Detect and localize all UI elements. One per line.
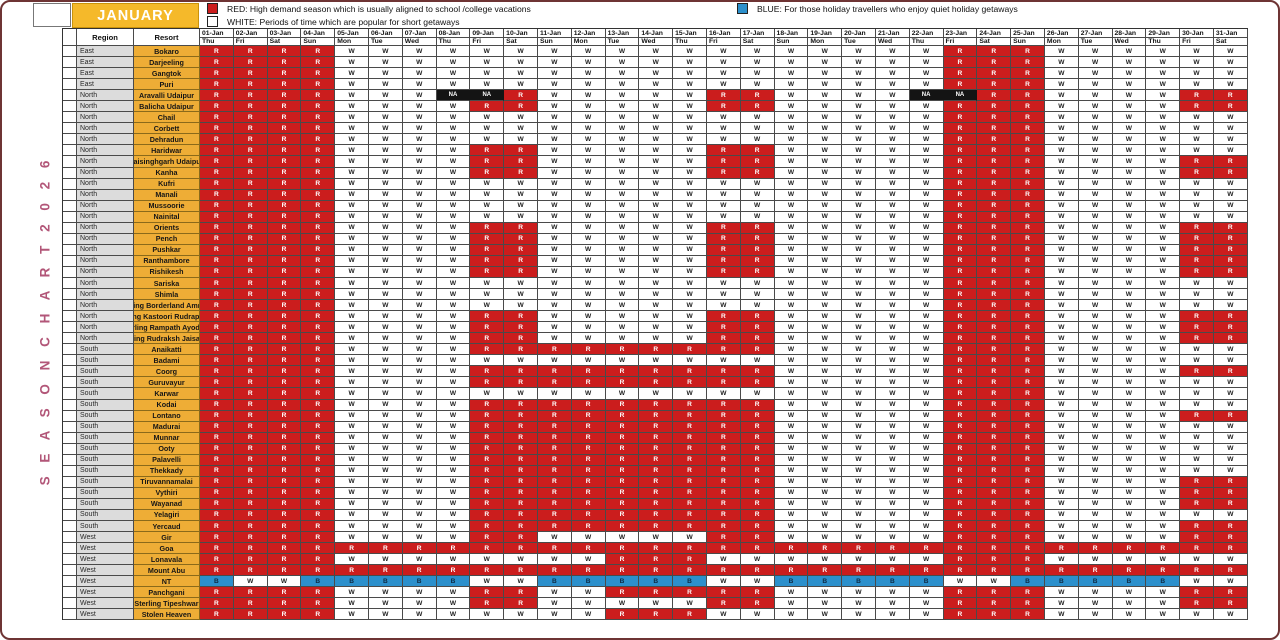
season-cell: W [775,168,809,179]
season-cell: R [200,444,234,455]
season-cell: W [572,598,606,609]
weekday-label: Fri [1180,38,1214,45]
season-cell: W [538,201,572,212]
season-cell: W [403,377,437,388]
season-cell: W [1146,521,1180,532]
season-cell: W [775,212,809,223]
table-row: NorthMussoorieRRRRWWWWWWWWWWWWWWWWWWRRRW… [63,201,1248,212]
season-cell: W [1079,499,1113,510]
season-cell: R [504,366,538,377]
season-cell: R [200,289,234,300]
season-cell: R [301,145,335,156]
season-cell: R [200,543,234,554]
region-cell: North [77,289,134,300]
season-cell: W [606,311,640,322]
season-cell: W [1180,179,1214,190]
row-blank-cell [63,212,77,223]
season-cell: W [673,289,707,300]
season-cell: W [1079,112,1113,123]
season-cell: W [910,168,944,179]
season-cell: R [1214,234,1248,245]
season-cell: W [1113,609,1147,620]
resort-name-cell: Munnar [134,433,200,444]
season-cell: R [200,554,234,565]
season-cell: R [268,411,302,422]
season-cell: R [234,101,268,112]
season-cell: W [1180,79,1214,90]
season-cell: W [1045,57,1079,68]
season-cell: R [504,466,538,477]
season-cell: W [639,289,673,300]
season-cell: W [335,477,369,488]
season-cell: R [200,223,234,234]
date-label: 14-Jan [639,29,673,38]
season-cell: R [944,377,978,388]
season-cell: B [842,576,876,587]
season-cell: R [268,123,302,134]
season-cell: R [301,510,335,521]
date-column-header: 16-JanFri [707,29,741,46]
region-cell: South [77,344,134,355]
season-cell: W [842,388,876,399]
region-cell: East [77,68,134,79]
season-cell: R [1180,322,1214,333]
season-cell: R [572,510,606,521]
season-cell: W [842,598,876,609]
season-cell: W [403,433,437,444]
season-cell: W [572,333,606,344]
season-cell: R [944,444,978,455]
season-cell: W [538,532,572,543]
season-cell: W [910,79,944,90]
season-cell: R [741,411,775,422]
season-cell: W [910,598,944,609]
date-label: 10-Jan [504,29,538,38]
date-column-header: 24-JanSat [977,29,1011,46]
season-cell: R [944,223,978,234]
season-cell: W [1146,300,1180,311]
season-cell: W [775,488,809,499]
season-cell: R [200,477,234,488]
season-cell: W [1214,190,1248,201]
season-cell: R [707,145,741,156]
season-cell: R [944,134,978,145]
table-row: SouthPalavelliRRRRWWWWRRRRRRRRRWWWWWRRRW… [63,455,1248,466]
season-cell: R [707,101,741,112]
resort-name-cell: Kufri [134,179,200,190]
season-cell: R [234,311,268,322]
season-cell: R [200,179,234,190]
season-cell: W [369,156,403,167]
season-cell: R [977,322,1011,333]
season-cell: W [335,609,369,620]
season-cell: W [335,422,369,433]
season-cell: R [268,598,302,609]
season-cell: W [572,587,606,598]
table-row: SouthTiruvannamalaiRRRRWWWWRRRRRRRRRWWWW… [63,477,1248,488]
season-cell: W [538,112,572,123]
season-cell: R [606,565,640,576]
season-cell: W [437,477,471,488]
season-cell: R [977,488,1011,499]
region-cell: South [77,455,134,466]
season-cell: W [1113,278,1147,289]
season-cell: R [470,256,504,267]
table-row: NorthSterling Kastoori RudraprayagRRRRWW… [63,311,1248,322]
season-cell: R [301,355,335,366]
season-cell: R [301,311,335,322]
season-cell: R [1180,90,1214,101]
season-cell: R [606,433,640,444]
season-cell: W [910,499,944,510]
season-cell: W [639,179,673,190]
season-cell: W [876,57,910,68]
season-cell: R [1214,477,1248,488]
season-cell: R [234,587,268,598]
season-cell: W [403,68,437,79]
season-cell: R [538,477,572,488]
season-cell: W [1079,554,1113,565]
season-cell: W [741,201,775,212]
season-cell: W [944,576,978,587]
date-column-header: 11-JanSun [538,29,572,46]
season-cell: W [606,289,640,300]
region-cell: South [77,521,134,532]
season-cell: W [673,68,707,79]
season-cell: R [977,134,1011,145]
season-cell: W [775,267,809,278]
season-cell: R [673,521,707,532]
season-cell: R [403,565,437,576]
resort-name-cell: Sterling Kastoori Rudraprayag [134,311,200,322]
season-cell: W [775,422,809,433]
season-cell: R [1011,212,1045,223]
season-cell: W [876,46,910,57]
season-cell: R [200,565,234,576]
season-cell: W [1113,68,1147,79]
season-cell: W [504,79,538,90]
season-cell: W [808,477,842,488]
season-cell: W [1214,112,1248,123]
table-row: NorthSariskaRRRRWWWWWWWWWWWWWWWWWWRRRWWW… [63,278,1248,289]
season-cell: R [741,267,775,278]
season-cell: W [538,322,572,333]
season-cell: W [808,201,842,212]
season-cell: R [301,532,335,543]
season-cell: W [808,112,842,123]
table-row: EastBokaroRRRRWWWWWWWWWWWWWWWWWWRRRWWWWW… [63,46,1248,57]
season-cell: W [1045,355,1079,366]
season-cell: W [876,377,910,388]
season-cell: R [1180,156,1214,167]
season-cell: B [403,576,437,587]
season-cell: W [876,90,910,101]
season-cell: W [369,333,403,344]
row-blank-cell [63,134,77,145]
season-cell: R [944,289,978,300]
table-row: NorthPushkarRRRRWWWWRRWWWWWRRWWWWWRRRWWW… [63,245,1248,256]
season-cell: W [538,134,572,145]
season-cell: R [639,565,673,576]
season-cell: W [369,444,403,455]
season-cell: R [639,400,673,411]
season-cell: R [977,300,1011,311]
season-cell: R [1180,499,1214,510]
season-cell: R [1011,134,1045,145]
season-cell: R [944,145,978,156]
table-row: SouthYercaudRRRRWWWWRRRRRRRRRWWWWWRRRWWW… [63,521,1248,532]
season-cell: R [572,565,606,576]
season-cell: W [1214,444,1248,455]
season-cell: R [639,366,673,377]
season-cell: W [403,46,437,57]
season-cell: R [504,344,538,355]
season-cell: R [944,366,978,377]
region-cell: South [77,510,134,521]
season-cell: R [301,179,335,190]
season-cell: R [301,344,335,355]
season-cell: R [234,234,268,245]
season-cell: R [606,477,640,488]
season-cell: W [572,289,606,300]
season-cell: W [1045,145,1079,156]
season-cell: W [1045,212,1079,223]
season-cell: R [200,201,234,212]
season-cell: W [1113,57,1147,68]
season-cell: R [268,333,302,344]
season-cell: W [538,223,572,234]
season-cell: R [606,400,640,411]
region-cell: North [77,234,134,245]
resort-name-cell: Gangtok [134,68,200,79]
season-cell: R [301,466,335,477]
season-cell: W [639,101,673,112]
season-cell: R [977,466,1011,477]
season-cell: R [234,123,268,134]
season-cell: W [707,278,741,289]
table-row: SouthMaduraiRRRRWWWWRRRRRRRRRWWWWWRRRWWW… [63,422,1248,433]
resort-name-cell: Shimla [134,289,200,300]
season-cell: W [403,333,437,344]
season-cell: R [1180,311,1214,322]
season-cell: R [977,68,1011,79]
season-cell: W [1214,123,1248,134]
season-cell: W [369,201,403,212]
season-cell: W [437,510,471,521]
weekday-label: Fri [470,38,504,45]
season-cell: W [876,455,910,466]
season-cell: W [369,101,403,112]
season-cell: R [842,565,876,576]
season-cell: W [470,609,504,620]
season-cell: R [1011,565,1045,576]
weekday-label: Thu [1146,38,1180,45]
season-cell: R [741,477,775,488]
season-cell: R [1011,300,1045,311]
season-cell: R [1011,477,1045,488]
season-cell: R [1180,598,1214,609]
table-row: NorthKanhaRRRRWWWWRRWWWWWRRWWWWWRRRWWWWR… [63,168,1248,179]
table-row: SouthMunnarRRRRWWWWRRRRRRRRRWWWWWRRRWWWW… [63,433,1248,444]
season-cell: W [775,256,809,267]
season-cell: W [538,212,572,223]
season-cell: R [234,212,268,223]
date-label: 27-Jan [1079,29,1113,38]
season-cell: W [1079,57,1113,68]
season-cell: R [268,587,302,598]
season-cell: R [504,565,538,576]
season-cell: W [606,355,640,366]
season-cell: W [1146,201,1180,212]
row-blank-cell [63,587,77,598]
season-cell: W [606,532,640,543]
season-cell: W [369,68,403,79]
date-label: 26-Jan [1045,29,1079,38]
weekday-label: Tue [606,38,640,45]
season-cell: W [1146,355,1180,366]
season-cell: R [977,145,1011,156]
season-cell: R [200,488,234,499]
season-cell: R [234,267,268,278]
season-cell: W [1045,422,1079,433]
season-cell: W [1045,190,1079,201]
season-cell: R [234,510,268,521]
season-cell: W [1113,377,1147,388]
season-cell: R [944,587,978,598]
season-cell: R [1011,256,1045,267]
date-label: 05-Jan [335,29,369,38]
season-cell: R [538,433,572,444]
season-cell: B [1146,576,1180,587]
season-cell: R [268,112,302,123]
season-cell: R [301,411,335,422]
season-cell: W [335,145,369,156]
season-cell: W [606,190,640,201]
season-cell: R [741,433,775,444]
season-cell: R [639,344,673,355]
season-cell: R [1011,278,1045,289]
season-cell: W [369,190,403,201]
resort-name-cell: Corbett [134,123,200,134]
season-cell: W [741,278,775,289]
season-cell: W [606,168,640,179]
season-cell: W [504,289,538,300]
season-cell: W [369,377,403,388]
season-cell: W [842,333,876,344]
weekday-label: Wed [876,38,910,45]
season-cell: W [335,212,369,223]
season-cell: W [606,278,640,289]
season-cell: R [301,422,335,433]
season-cell: W [910,145,944,156]
season-cell: W [673,90,707,101]
season-cell: R [234,422,268,433]
season-cell: R [1011,156,1045,167]
season-cell: W [1180,145,1214,156]
season-cell: W [1045,289,1079,300]
season-cell: W [741,300,775,311]
season-cell: W [1113,477,1147,488]
season-cell: R [977,289,1011,300]
season-cell: W [808,289,842,300]
season-cell: W [369,609,403,620]
season-cell: W [403,90,437,101]
season-cell: R [944,565,978,576]
row-blank-cell [63,90,77,101]
season-cell: W [1180,444,1214,455]
season-cell: R [1146,565,1180,576]
season-cell: W [842,411,876,422]
season-cell: R [504,90,538,101]
season-cell: R [876,565,910,576]
season-cell: R [1011,46,1045,57]
season-cell: W [1214,455,1248,466]
season-chart-table: RegionResort01-JanThu02-JanFri03-JanSat0… [62,28,1248,620]
season-cell: W [1045,532,1079,543]
season-cell: W [673,57,707,68]
season-cell: W [775,532,809,543]
resort-name-cell: Aravalli Udaipur [134,90,200,101]
season-cell: W [1146,46,1180,57]
season-cell: R [504,433,538,444]
season-cell: R [1079,543,1113,554]
season-cell: W [741,609,775,620]
season-cell: W [1113,499,1147,510]
season-cell: W [1045,388,1079,399]
season-cell: W [1045,344,1079,355]
legend-blue: BLUE: For those holiday travellers who e… [737,3,1018,14]
season-cell: W [775,101,809,112]
season-cell: W [741,57,775,68]
weekday-label: Sun [775,38,809,45]
season-cell: R [606,344,640,355]
season-cell: W [1079,477,1113,488]
season-cell: R [1011,411,1045,422]
season-cell: R [977,510,1011,521]
season-cell: W [437,499,471,510]
date-label: 23-Jan [944,29,978,38]
season-cell: W [1079,488,1113,499]
season-cell: W [403,212,437,223]
season-cell: W [876,400,910,411]
blue-swatch-icon [737,3,748,14]
region-cell: North [77,212,134,223]
season-cell: R [268,201,302,212]
season-cell: W [1045,134,1079,145]
season-cell: W [1214,377,1248,388]
season-cell: R [1214,488,1248,499]
season-cell: R [707,245,741,256]
season-cell: W [403,311,437,322]
season-cell: W [808,79,842,90]
season-cell: W [470,289,504,300]
season-cell: W [572,179,606,190]
season-cell: W [910,355,944,366]
season-cell: W [775,46,809,57]
season-cell: W [808,256,842,267]
season-cell: R [944,168,978,179]
season-cell: R [1011,79,1045,90]
season-cell: R [977,278,1011,289]
season-cell: W [639,333,673,344]
date-column-header: 17-JanSat [741,29,775,46]
season-cell: W [876,267,910,278]
season-cell: W [335,344,369,355]
season-cell: W [876,311,910,322]
season-cell: R [504,488,538,499]
season-cell: W [876,134,910,145]
season-cell: W [572,223,606,234]
